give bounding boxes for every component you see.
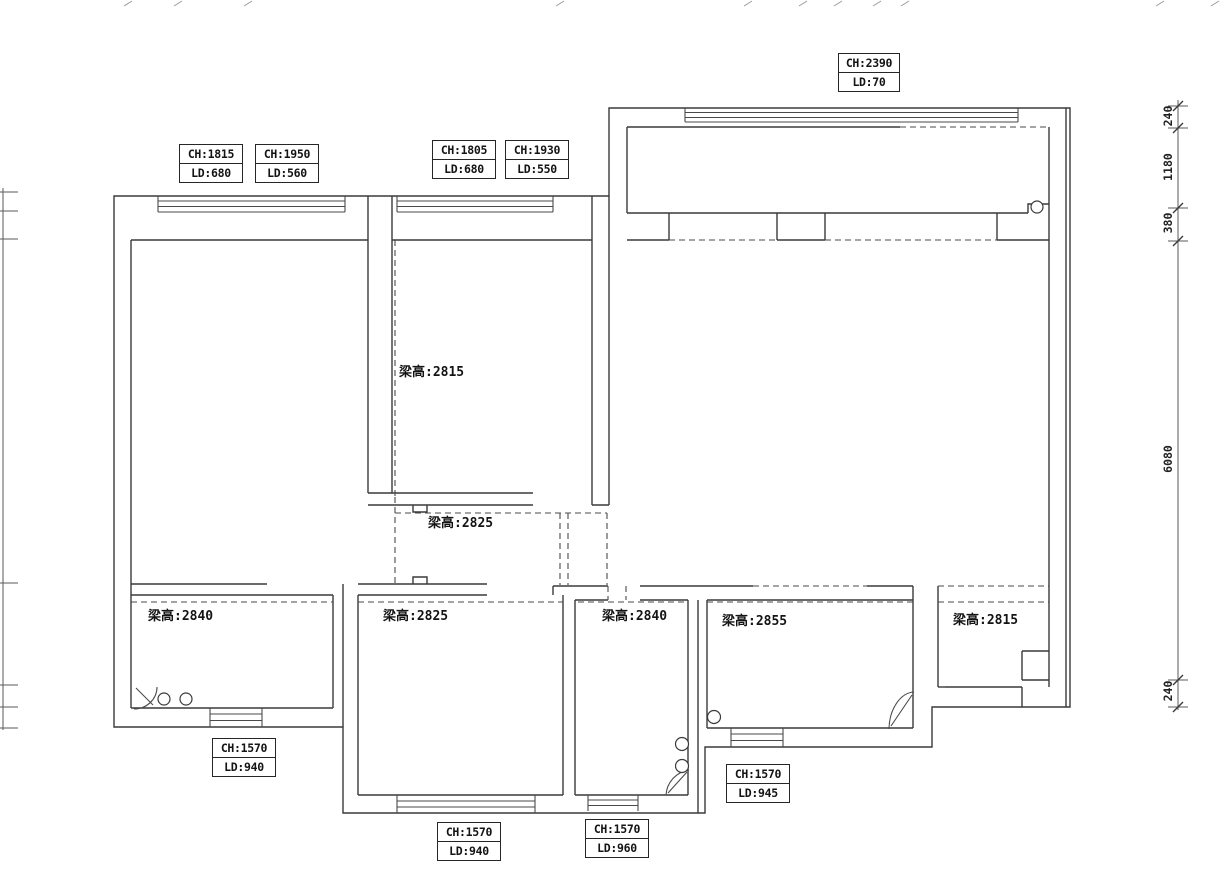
ld-value: LD:560 — [256, 164, 318, 182]
ld-value: LD:70 — [839, 73, 899, 91]
beam-height-label: 梁高:2825 — [428, 512, 493, 531]
beam-height-label: 梁高:2840 — [148, 605, 213, 624]
ld-value: LD:945 — [727, 784, 789, 802]
window-size-label: CH:2390 LD:70 — [838, 53, 900, 92]
floor-plan-canvas: CH:1815 LD:680 CH:1950 LD:560 CH:1805 LD… — [0, 0, 1229, 875]
ch-value: CH:1950 — [256, 145, 318, 164]
ld-value: LD:680 — [180, 164, 242, 182]
pipe-circle-symbols — [158, 201, 1043, 773]
window-size-label: CH:1570 LD:960 — [585, 819, 649, 858]
beam-height-label: 梁高:2815 — [399, 361, 464, 380]
ld-value: LD:940 — [213, 758, 275, 776]
ld-value: LD:680 — [433, 160, 495, 178]
ld-value: LD:960 — [586, 839, 648, 857]
beam-height-label: 梁高:2815 — [953, 609, 1018, 628]
beam-height-label: 梁高:2840 — [602, 605, 667, 624]
beam-dashed-lines — [131, 127, 1049, 602]
dimension-value: 6080 — [1161, 437, 1175, 481]
ch-value: CH:1570 — [213, 739, 275, 758]
ch-value: CH:1570 — [586, 820, 648, 839]
ch-value: CH:1570 — [438, 823, 500, 842]
ch-value: CH:1930 — [506, 141, 568, 160]
window-size-label: CH:1570 LD:940 — [437, 822, 501, 861]
dimension-value: 380 — [1161, 201, 1175, 245]
interior-walls — [131, 127, 1049, 813]
floor-plan-drawing — [0, 0, 1229, 875]
ch-value: CH:1570 — [727, 765, 789, 784]
beam-height-label: 梁高:2825 — [383, 605, 448, 624]
ch-value: CH:1815 — [180, 145, 242, 164]
ld-value: LD:940 — [438, 842, 500, 860]
window-size-label: CH:1930 LD:550 — [505, 140, 569, 179]
ch-value: CH:2390 — [839, 54, 899, 73]
window-size-label: CH:1570 LD:945 — [726, 764, 790, 803]
window-symbols — [158, 108, 1018, 813]
window-size-label: CH:1815 LD:680 — [179, 144, 243, 183]
window-size-label: CH:1570 LD:940 — [212, 738, 276, 777]
window-size-label: CH:1805 LD:680 — [432, 140, 496, 179]
dimension-value: 240 — [1161, 94, 1175, 138]
dimension-value: 1180 — [1161, 145, 1175, 189]
ld-value: LD:550 — [506, 160, 568, 178]
ch-value: CH:1805 — [433, 141, 495, 160]
dimension-value: 240 — [1161, 669, 1175, 713]
beam-height-label: 梁高:2855 — [722, 610, 787, 629]
window-size-label: CH:1950 LD:560 — [255, 144, 319, 183]
